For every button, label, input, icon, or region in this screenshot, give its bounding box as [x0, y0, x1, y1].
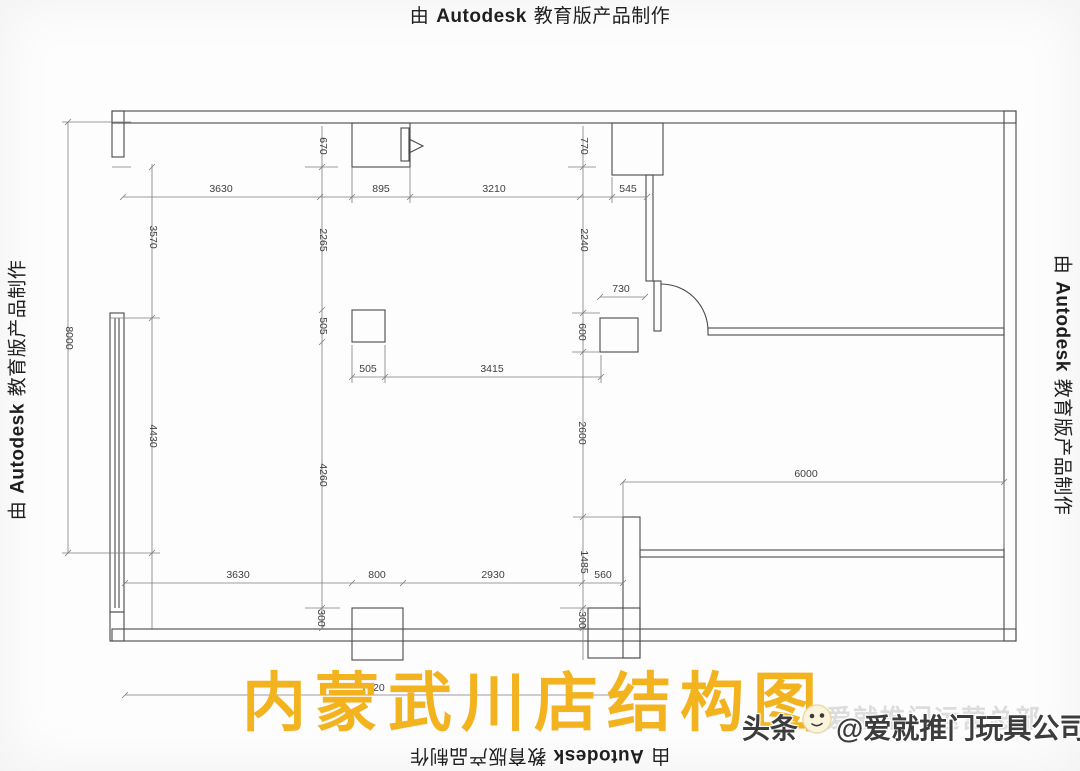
interior-wall-vertical: [646, 175, 653, 281]
dim-label-top-895: 895: [372, 183, 390, 195]
watermark-prefix: 由: [410, 6, 430, 27]
dim-label-1485: 1485: [578, 550, 590, 574]
door-swing-arc: [661, 284, 708, 331]
left-window-frame: [110, 313, 124, 612]
dim-label-2265: 2265: [317, 228, 329, 252]
dim-label-2600: 2600: [576, 421, 588, 445]
watermark-brand: Autodesk: [1052, 281, 1073, 372]
dim-label-right-6000: 6000: [794, 468, 818, 480]
byline-channel: 头条: [742, 707, 798, 747]
watermark-suffix: 教育版产品制作: [410, 745, 547, 766]
dim-label-top-3210: 3210: [482, 183, 506, 195]
watermark-prefix: 由: [651, 745, 671, 766]
dim-label-300-right: 300: [576, 611, 588, 629]
top-door-leaf: [401, 128, 409, 161]
dim-label-bot-800: 800: [368, 569, 386, 581]
dim-label-bot-2930: 2930: [481, 569, 505, 581]
dim-label-770: 770: [578, 137, 590, 155]
autodesk-watermark-top: 由Autodesk教育版产品制作: [410, 1, 671, 28]
dim-label-mid-730: 730: [612, 283, 630, 295]
middle-column: [352, 310, 385, 342]
top-wall: [112, 111, 1016, 123]
watermark-suffix: 教育版产品制作: [8, 260, 29, 397]
watermark-brand: Autodesk: [436, 6, 527, 27]
top-door-swing-icon: [409, 139, 423, 153]
dim-label-4260: 4260: [317, 463, 329, 487]
dimension-lines: [62, 119, 1007, 698]
dim-label-3570: 3570: [147, 225, 159, 249]
autodesk-watermark-left: 由Autodesk教育版产品制作: [3, 260, 30, 521]
left-wall-top-pier: [112, 111, 124, 157]
watermark-suffix: 教育版产品制作: [1052, 379, 1073, 516]
dim-label-505v: 505: [317, 317, 329, 335]
byline-handle: @爱就推门玩具公司: [836, 707, 1080, 747]
junction-box: [600, 318, 638, 352]
dim-label-mid-3415: 3415: [480, 363, 504, 375]
dim-label-600: 600: [576, 323, 588, 341]
page-title: 内蒙武川店结构图: [242, 652, 826, 744]
dim-label-4430: 4430: [147, 424, 159, 448]
top-right-column: [612, 123, 663, 175]
dim-label-top-3630: 3630: [209, 183, 233, 195]
interior-wall-right-upper: [708, 328, 1004, 335]
bottom-right-pier: [623, 517, 640, 658]
autodesk-watermark-right: 由Autodesk教育版产品制作: [1051, 255, 1078, 516]
watermark-prefix: 由: [8, 501, 29, 521]
dim-label-300-left: 300: [315, 609, 327, 627]
watermark-brand: Autodesk: [553, 745, 644, 766]
dim-label-bot-560: 560: [594, 569, 612, 581]
dimension-labels: 3630 895 3210 545 730 505 3415 6000 3630…: [63, 137, 818, 694]
bottom-right-pier-foot: [588, 608, 640, 658]
floorplan-page: 3630 895 3210 545 730 505 3415 6000 3630…: [0, 0, 1080, 771]
dim-label-8000: 8000: [63, 326, 75, 350]
autodesk-watermark-bottom: 由Autodesk教育版产品制作: [410, 744, 671, 771]
door-leaf: [654, 281, 661, 331]
dim-label-mid-505: 505: [359, 363, 377, 375]
bottom-wall: [112, 629, 1016, 641]
interior-wall-right-lower: [640, 550, 1004, 557]
dim-label-2240: 2240: [578, 228, 590, 252]
toutiao-face-icon: [801, 703, 833, 735]
dim-label-top-545: 545: [619, 183, 637, 195]
dim-label-670: 670: [317, 137, 329, 155]
watermark-brand: Autodesk: [8, 403, 29, 494]
byline: 头条 @爱就推门玩具公司: [742, 707, 1080, 747]
right-wall: [1004, 111, 1016, 641]
watermark-suffix: 教育版产品制作: [534, 6, 671, 27]
watermark-prefix: 由: [1052, 255, 1073, 275]
dim-label-bot-3630: 3630: [226, 569, 250, 581]
